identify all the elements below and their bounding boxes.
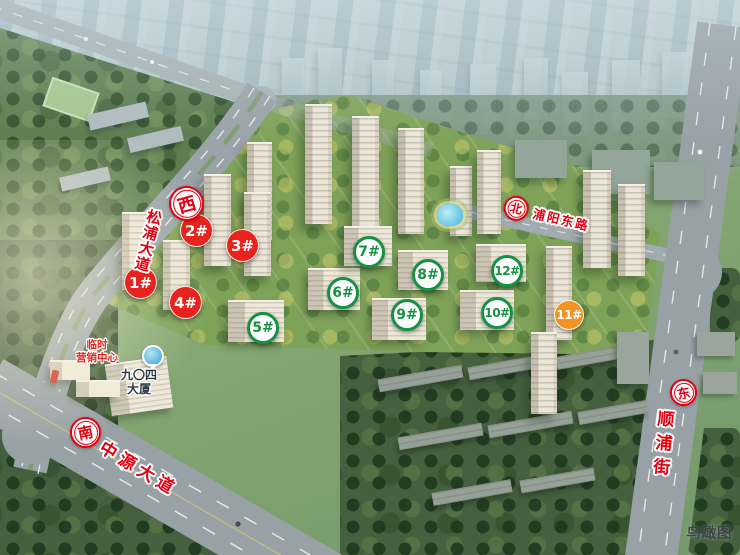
building-marker-8: 8# (412, 259, 444, 291)
residential-tower (398, 128, 424, 234)
building-marker-12: 12# (491, 255, 523, 287)
north-road-stamp: 北 (501, 193, 531, 223)
residential-tower (352, 116, 379, 230)
decor-development-towers (0, 0, 740, 555)
tower-904-label-line2: 大厦 (110, 382, 168, 396)
building-marker-11: 11# (554, 300, 584, 330)
building-marker-4: 4# (169, 286, 202, 319)
landscape-pool (437, 204, 463, 226)
residential-tower (531, 332, 557, 414)
tower-904-label-line1: 九〇四 (110, 368, 168, 382)
view-caption: 鸟瞰图 (686, 522, 733, 543)
building-marker-7: 7# (353, 236, 385, 268)
building-marker-6: 6# (327, 277, 359, 309)
sales-center-label: 临时 营销中心 (68, 339, 126, 364)
sales-center-label-line2: 营销中心 (68, 352, 126, 365)
residential-tower (477, 150, 501, 234)
road-name-char: 街 (652, 455, 671, 480)
building-marker-5: 5# (247, 312, 279, 344)
building-marker-9: 9# (391, 299, 423, 331)
building-marker-3: 3# (226, 229, 259, 262)
building-marker-10: 10# (481, 297, 513, 329)
road-name-char: 道 (133, 255, 151, 274)
road-name-char: 浦 (654, 431, 673, 456)
aerial-masterplan-rendering: 1# 2# 3# 4# 5# 6# 7# 8# 9# 10# 11# 12# 西… (0, 0, 740, 555)
residential-tower (305, 104, 332, 224)
tower-904-label: 九〇四 大厦 (110, 368, 168, 397)
residential-tower (618, 184, 645, 276)
road-name-char: 顺 (656, 407, 675, 432)
sales-center-label-line1: 临时 (68, 339, 126, 352)
location-pin-icon (142, 345, 164, 367)
